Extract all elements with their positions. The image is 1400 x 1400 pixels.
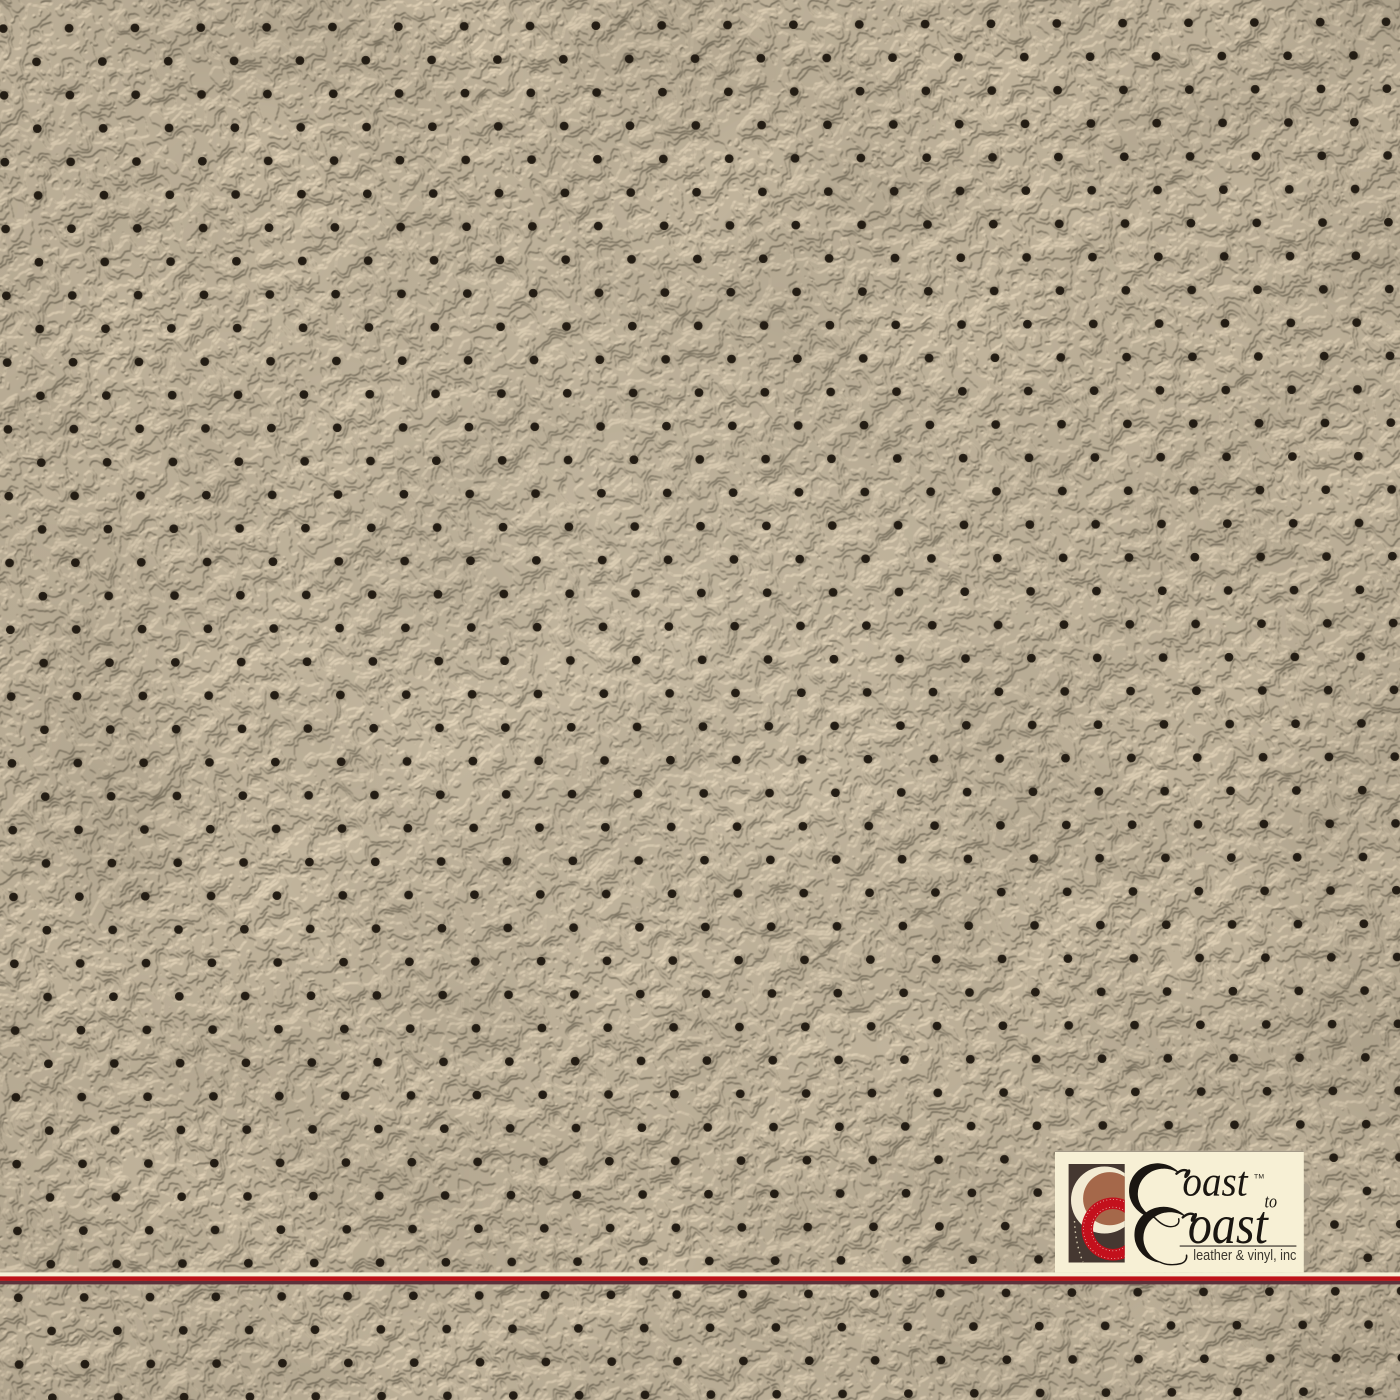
svg-text:leather & vinyl, inc: leather & vinyl, inc xyxy=(1193,1248,1296,1264)
svg-text:TM: TM xyxy=(1254,1173,1264,1180)
